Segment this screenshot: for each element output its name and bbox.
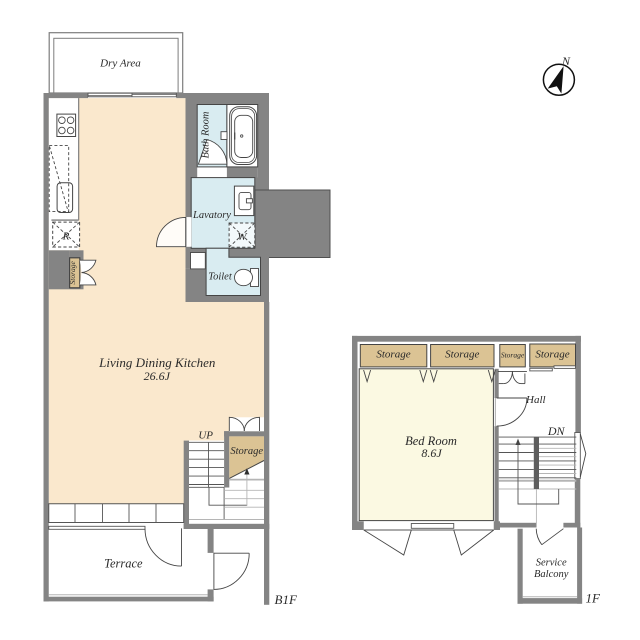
svg-text:26.6J: 26.6J [144, 369, 171, 383]
svg-text:Storage: Storage [230, 446, 263, 457]
svg-text:8.6J: 8.6J [421, 446, 442, 460]
svg-text:Toilet: Toilet [208, 272, 233, 283]
svg-text:Terrace: Terrace [104, 557, 143, 571]
svg-text:1F: 1F [586, 591, 602, 606]
svg-text:Storage: Storage [445, 349, 479, 361]
svg-text:Storage: Storage [501, 351, 525, 360]
svg-text:Dry Area: Dry Area [99, 58, 141, 70]
svg-text:B1F: B1F [275, 592, 298, 607]
svg-text:Living Dining Kitchen: Living Dining Kitchen [98, 355, 215, 370]
svg-text:Storage: Storage [535, 349, 569, 361]
svg-text:Service: Service [536, 558, 567, 569]
svg-text:DN: DN [547, 424, 566, 438]
svg-text:Storage: Storage [376, 349, 410, 361]
svg-text:N: N [561, 54, 571, 68]
svg-text:Balcony: Balcony [534, 569, 569, 580]
svg-text:Hall: Hall [525, 394, 546, 406]
svg-text:UP: UP [198, 430, 213, 442]
svg-text:Lavatory: Lavatory [192, 210, 231, 221]
svg-text:Storage: Storage [68, 260, 77, 284]
svg-text:Bath Room: Bath Room [201, 111, 212, 158]
svg-text:R: R [62, 231, 70, 243]
svg-text:W: W [237, 231, 247, 243]
